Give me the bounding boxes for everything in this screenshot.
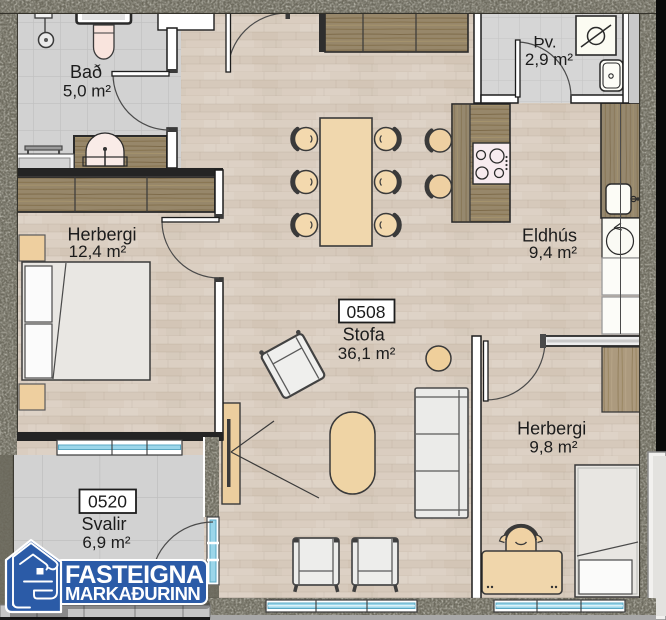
svg-text:9,8 m²: 9,8 m² <box>529 438 578 457</box>
svg-text:Bað: Bað <box>70 62 102 82</box>
svg-text:36,1 m²: 36,1 m² <box>338 344 396 363</box>
svg-text:Herbergi: Herbergi <box>517 419 586 439</box>
svg-text:MARKAÐURINN: MARKAÐURINN <box>65 583 200 604</box>
svg-text:9,4 m²: 9,4 m² <box>529 243 578 262</box>
svg-text:2,9 m²: 2,9 m² <box>525 50 574 69</box>
svg-text:0520: 0520 <box>88 492 127 512</box>
svg-text:Stofa: Stofa <box>343 325 386 345</box>
svg-text:5,0 m²: 5,0 m² <box>63 82 112 101</box>
svg-text:6,9 m²: 6,9 m² <box>82 533 131 552</box>
svg-text:Þv.: Þv. <box>533 32 556 51</box>
svg-text:Svalir: Svalir <box>81 514 126 534</box>
svg-text:12,4 m²: 12,4 m² <box>69 242 127 261</box>
svg-text:0508: 0508 <box>347 302 386 322</box>
